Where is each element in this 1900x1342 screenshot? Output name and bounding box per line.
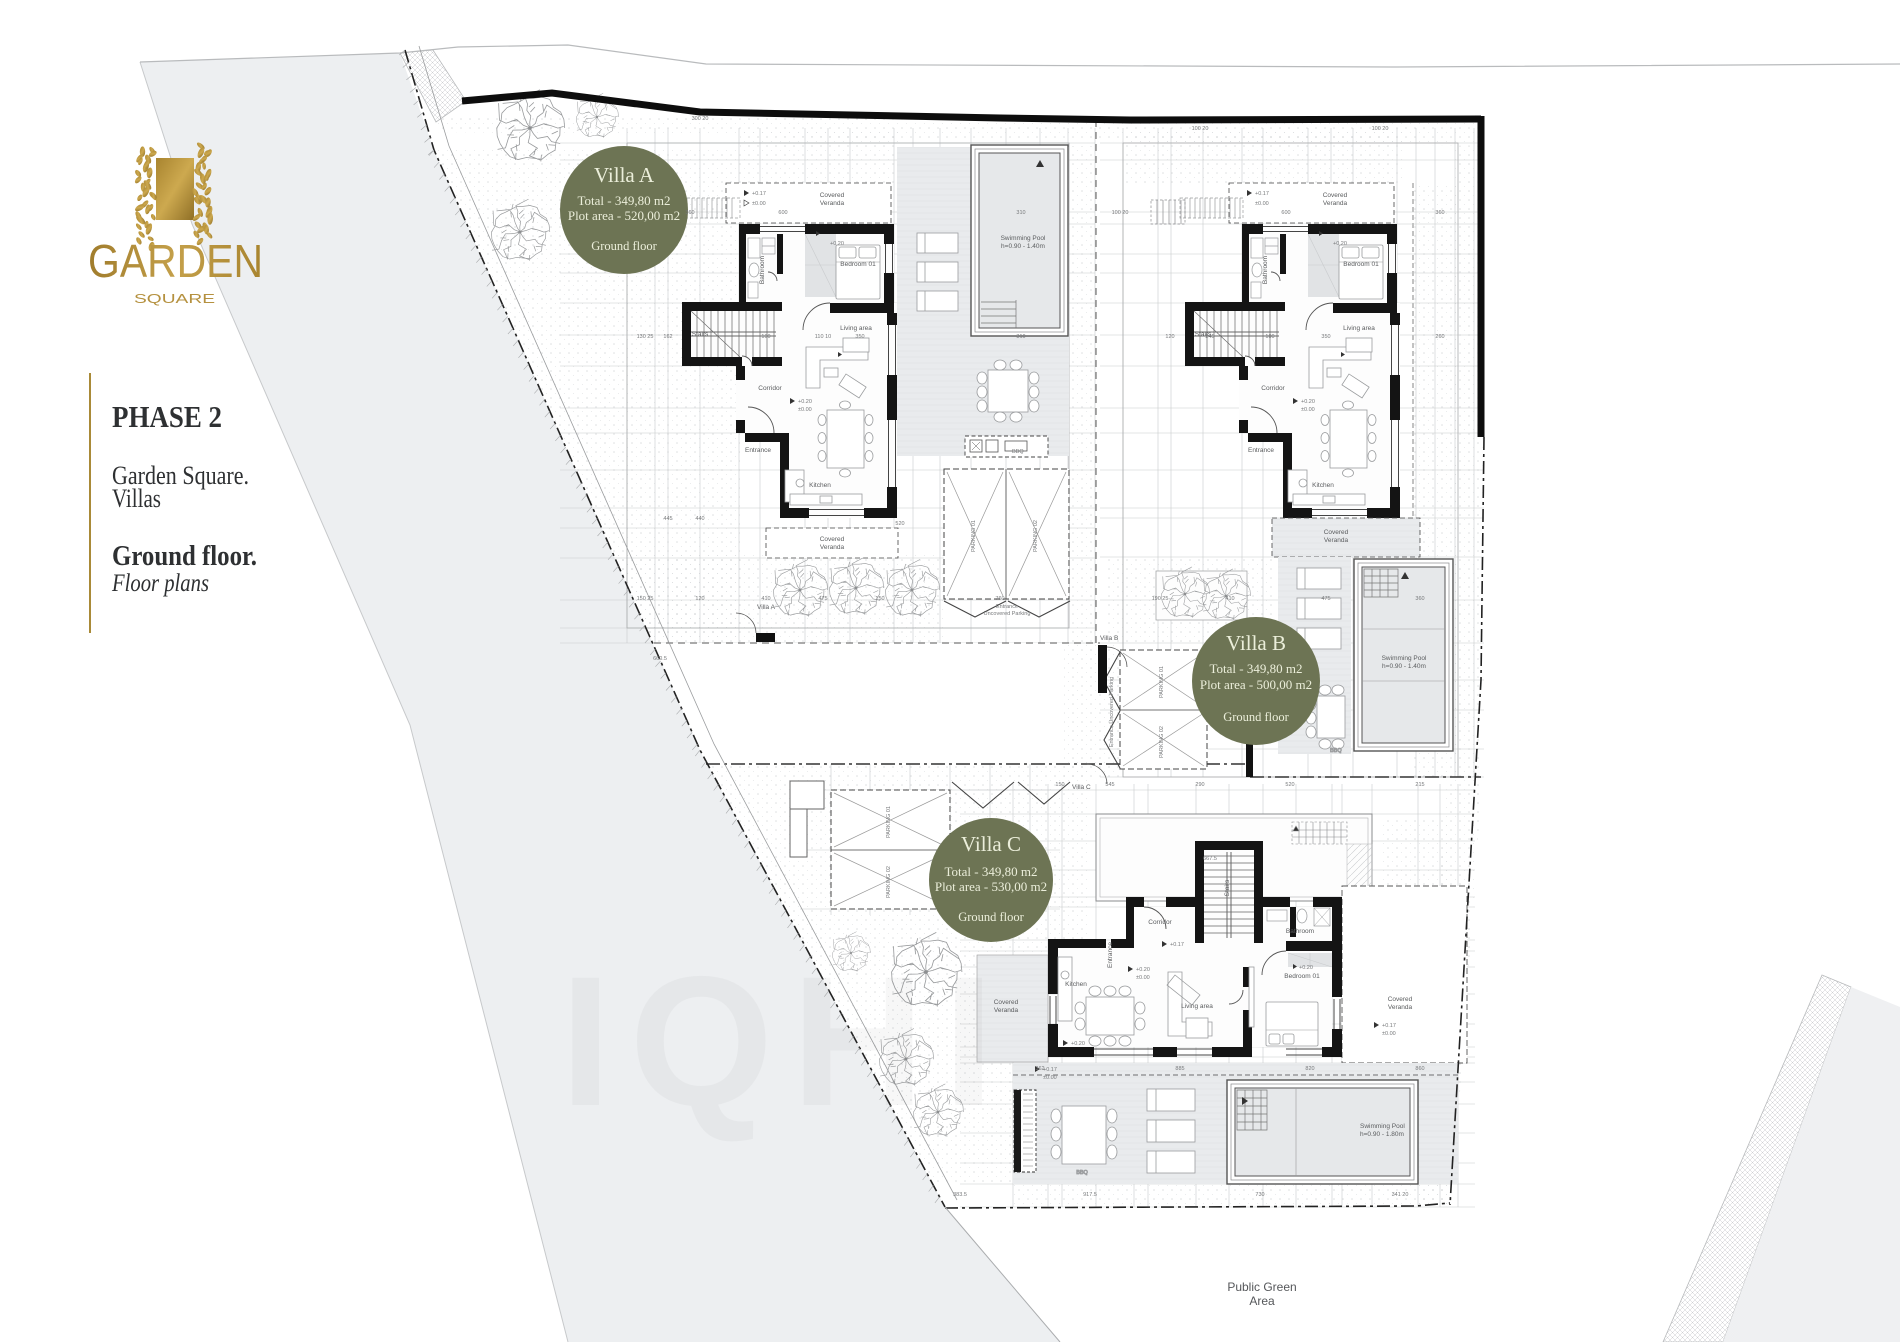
svg-text:440: 440 [695, 516, 704, 522]
svg-text:+0.20: +0.20 [1299, 965, 1313, 971]
svg-text:475: 475 [818, 596, 827, 602]
svg-text:Corridor: Corridor [1148, 919, 1172, 926]
svg-text:667.5: 667.5 [1203, 856, 1217, 862]
svg-text:120: 120 [1165, 334, 1174, 340]
svg-text:100 20: 100 20 [1112, 210, 1129, 216]
svg-text:h=0.90 - 1.80m: h=0.90 - 1.80m [1360, 1131, 1404, 1138]
svg-text:Ground floor: Ground floor [958, 910, 1024, 924]
svg-text:Public Green: Public Green [1227, 1280, 1296, 1294]
svg-text:917.5: 917.5 [1083, 1192, 1097, 1198]
svg-text:Covered: Covered [1323, 192, 1348, 199]
svg-text:520: 520 [1285, 782, 1294, 788]
svg-text:Villa B: Villa B [1226, 631, 1286, 655]
svg-text:±0.00: ±0.00 [1255, 201, 1269, 207]
svg-text:+0.17: +0.17 [1255, 191, 1269, 197]
svg-text:Veranda: Veranda [820, 544, 845, 551]
svg-text:300 20: 300 20 [692, 116, 709, 122]
svg-text:Entrance Uncovered Parking: Entrance Uncovered Parking [1109, 677, 1115, 747]
svg-text:Villa A: Villa A [594, 163, 655, 187]
svg-text:Bedroom 01: Bedroom 01 [1284, 973, 1320, 980]
svg-text:GARDEN: GARDEN [88, 235, 263, 287]
svg-text:600: 600 [1281, 210, 1290, 216]
svg-text:Ground floor: Ground floor [1223, 710, 1289, 724]
svg-text:Villa A: Villa A [757, 604, 776, 611]
svg-text:100 20: 100 20 [1192, 126, 1209, 132]
svg-text:Living area: Living area [840, 325, 872, 332]
svg-text:310: 310 [1016, 210, 1025, 216]
svg-text:±0.00: ±0.00 [1136, 975, 1150, 981]
svg-text:Kitchen: Kitchen [1065, 981, 1087, 988]
svg-text:Swimming Pool: Swimming Pool [1382, 655, 1427, 662]
svg-text:Swimming Pool: Swimming Pool [1001, 235, 1046, 242]
svg-text:410: 410 [1225, 596, 1234, 602]
svg-text:PARKING 01: PARKING 01 [971, 520, 977, 552]
svg-text:Entrance: Entrance [1107, 942, 1114, 968]
svg-text:100: 100 [1265, 334, 1274, 340]
svg-text:Veranda: Veranda [1388, 1004, 1413, 1011]
svg-text:760: 760 [995, 596, 1004, 602]
svg-text:Stairs: Stairs [692, 331, 709, 338]
svg-text:310: 310 [1016, 334, 1025, 340]
svg-text:+0.20: +0.20 [1071, 1041, 1085, 1047]
svg-text:Uncovered Parking: Uncovered Parking [984, 611, 1031, 617]
svg-text:Bathroom: Bathroom [759, 256, 766, 284]
svg-text:520: 520 [895, 521, 904, 527]
svg-text:245: 245 [1205, 334, 1214, 340]
svg-text:Total - 349,80 m2: Total - 349,80 m2 [1210, 661, 1303, 676]
svg-text:Plot area - 530,00 m2: Plot area - 530,00 m2 [935, 879, 1047, 894]
svg-text:150: 150 [1055, 782, 1064, 788]
svg-text:+0.20: +0.20 [798, 399, 812, 405]
svg-text:±0.00: ±0.00 [798, 407, 812, 413]
svg-text:Veranda: Veranda [820, 200, 845, 207]
svg-text:360: 360 [1435, 210, 1444, 216]
svg-text:+0.17: +0.17 [1043, 1067, 1057, 1073]
svg-text:PARKING 01: PARKING 01 [1159, 666, 1165, 698]
svg-text:341 20: 341 20 [1392, 1192, 1409, 1198]
svg-text:Veranda: Veranda [1323, 200, 1348, 207]
svg-text:Ground floor: Ground floor [591, 239, 657, 253]
svg-text:860: 860 [1415, 1066, 1424, 1072]
svg-text:PARKING 02: PARKING 02 [1159, 726, 1165, 758]
svg-text:150 25: 150 25 [637, 596, 654, 602]
svg-text:260: 260 [1435, 334, 1444, 340]
svg-text:383.5: 383.5 [953, 1192, 967, 1198]
svg-text:100 20: 100 20 [1372, 126, 1389, 132]
svg-text:+0.17: +0.17 [752, 191, 766, 197]
svg-text:Plot area - 520,00 m2: Plot area - 520,00 m2 [568, 208, 680, 223]
svg-text:PARKING 02: PARKING 02 [886, 866, 892, 898]
svg-text:360: 360 [685, 210, 694, 216]
svg-text:545: 545 [1105, 782, 1114, 788]
svg-text:Villa C: Villa C [961, 832, 1021, 856]
svg-text:100: 100 [761, 334, 770, 340]
svg-text:885: 885 [1175, 1066, 1184, 1072]
svg-text:Bedroom 01: Bedroom 01 [840, 261, 876, 268]
svg-text:730: 730 [1255, 1192, 1264, 1198]
svg-text:Ground floor.: Ground floor. [112, 541, 257, 572]
svg-text:410: 410 [761, 596, 770, 602]
svg-text:Corridor: Corridor [758, 385, 782, 392]
svg-text:Entrance: Entrance [996, 604, 1018, 610]
svg-text:IQHI: IQHI [560, 939, 1012, 1145]
svg-text:+0.20: +0.20 [830, 241, 844, 247]
svg-text:Covered: Covered [1388, 996, 1413, 1003]
svg-text:Total - 349,80 m2: Total - 349,80 m2 [578, 193, 671, 208]
svg-text:190 25: 190 25 [1152, 596, 1169, 602]
svg-text:BBQ: BBQ [1012, 449, 1024, 455]
svg-text:162: 162 [663, 334, 672, 340]
svg-text:350: 350 [1321, 334, 1330, 340]
svg-text:820: 820 [1305, 1066, 1314, 1072]
svg-text:Veranda: Veranda [1324, 537, 1349, 544]
svg-text:SQUARE: SQUARE [134, 291, 215, 306]
svg-text:PARKING 02: PARKING 02 [1033, 520, 1039, 552]
svg-text:110 10: 110 10 [815, 334, 831, 340]
svg-text:h=0.90 - 1.40m: h=0.90 - 1.40m [1382, 663, 1426, 670]
svg-text:PARKING 01: PARKING 01 [886, 806, 892, 838]
svg-text:Kitchen: Kitchen [809, 482, 831, 489]
svg-text:130 25: 130 25 [637, 334, 654, 340]
svg-text:360: 360 [1415, 596, 1424, 602]
svg-text:600: 600 [778, 210, 787, 216]
svg-text:±0.00: ±0.00 [1382, 1031, 1396, 1037]
svg-text:±0.00: ±0.00 [1043, 1075, 1057, 1081]
svg-text:Floor plans: Floor plans [111, 570, 209, 597]
svg-text:215: 215 [1415, 782, 1424, 788]
svg-text:362: 362 [1035, 1066, 1044, 1072]
svg-text:Villa C: Villa C [1072, 784, 1091, 791]
svg-text:h=0.90 - 1.40m: h=0.90 - 1.40m [1001, 243, 1045, 250]
svg-text:Plot area - 500,00 m2: Plot area - 500,00 m2 [1200, 677, 1312, 692]
svg-text:+0.17: +0.17 [1382, 1023, 1396, 1029]
svg-text:475: 475 [1321, 596, 1330, 602]
svg-text:Entrance: Entrance [745, 447, 771, 454]
svg-text:Stairs: Stairs [1224, 879, 1231, 896]
svg-text:Area: Area [1249, 1294, 1275, 1308]
svg-text:660.5: 660.5 [653, 656, 667, 662]
svg-text:Total - 349,80 m2: Total - 349,80 m2 [945, 864, 1038, 879]
svg-text:Covered: Covered [1324, 529, 1349, 536]
svg-text:Covered: Covered [820, 536, 845, 543]
svg-text:290: 290 [1195, 782, 1204, 788]
svg-text:Swimming Pool: Swimming Pool [1360, 1123, 1405, 1130]
svg-text:+0.20: +0.20 [1136, 967, 1150, 973]
svg-text:445: 445 [663, 516, 672, 522]
svg-text:BBQ: BBQ [1076, 1170, 1088, 1176]
svg-text:+0.17: +0.17 [1170, 942, 1184, 948]
svg-text:Living area: Living area [1181, 1003, 1213, 1010]
svg-text:120: 120 [695, 596, 704, 602]
svg-text:Bathroom: Bathroom [1286, 928, 1314, 935]
svg-text:150: 150 [875, 596, 884, 602]
svg-text:350: 350 [855, 334, 864, 340]
svg-text:Villas: Villas [112, 484, 161, 513]
svg-text:PHASE 2: PHASE 2 [112, 399, 222, 434]
svg-text:Covered: Covered [820, 192, 845, 199]
svg-text:BBQ: BBQ [1330, 748, 1342, 754]
svg-text:±0.00: ±0.00 [752, 201, 766, 207]
svg-text:Villa B: Villa B [1100, 635, 1118, 642]
